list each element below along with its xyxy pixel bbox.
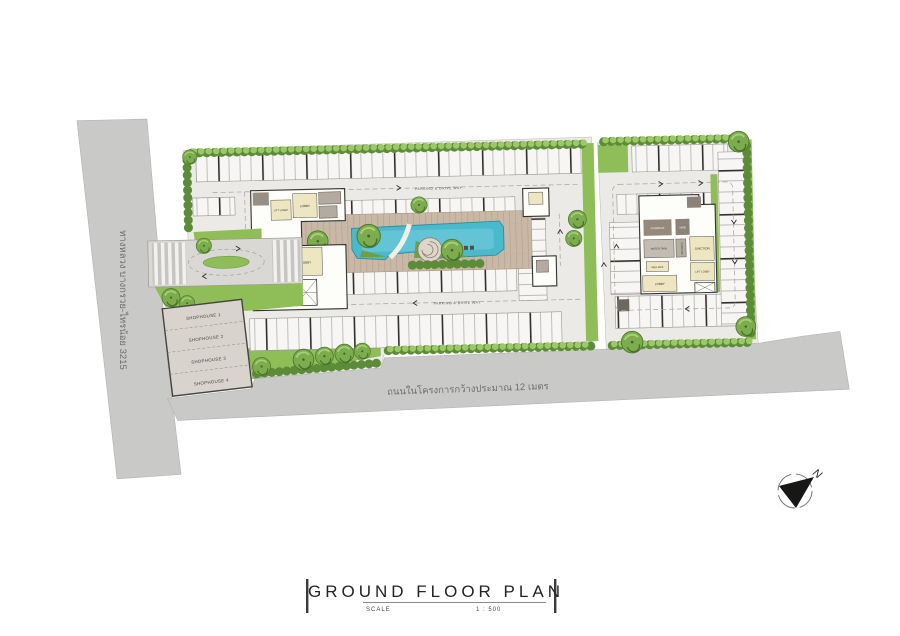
hedge-west-dark — [187, 160, 189, 232]
tree — [354, 343, 371, 360]
parking-row-small-west — [193, 197, 235, 216]
title-block: GROUND FLOOR PLAN SCALE 1 : 500 — [306, 579, 564, 613]
building-a-shaft — [253, 192, 269, 205]
tree — [568, 210, 586, 228]
room-label: MDB — [679, 225, 685, 229]
scale-value: 1 : 500 — [476, 607, 501, 613]
tree — [411, 197, 428, 214]
east-lawn-corner — [598, 144, 629, 173]
room-label: LOBBY — [655, 282, 665, 286]
room-label: LIFT LOBBY — [274, 208, 289, 212]
tree — [736, 316, 756, 336]
shophouse-block: SHOPHOUSE 1 SHOPHOUSE 2 SHOPHOUSE 3 SHOP… — [162, 299, 252, 396]
tree — [565, 230, 582, 247]
north-arrow: N — [778, 467, 824, 508]
tree — [252, 357, 270, 375]
parking-row-east-north — [632, 144, 729, 172]
tree — [357, 224, 381, 248]
room-label: PUMP RM. — [680, 242, 684, 255]
ground-floor-plan-page: PARKING & DRIVE WAY PARKING & DRIVE WAY — [0, 0, 900, 636]
north-pointer — [779, 477, 814, 508]
tree — [728, 131, 749, 152]
building-a-utility-2 — [319, 206, 337, 218]
room-label: WATER TANK — [651, 246, 668, 250]
plan-title: GROUND FLOOR PLAN — [308, 582, 564, 601]
utility-room — [529, 192, 543, 204]
room-label: MAIL BOX — [651, 265, 664, 269]
room-label: GARBAGE — [651, 226, 665, 230]
tree — [293, 349, 314, 370]
tree — [441, 239, 463, 261]
site-plan-drawing: PARKING & DRIVE WAY PARKING & DRIVE WAY — [0, 0, 900, 636]
entry-stripes-east — [272, 240, 301, 283]
room-label: LOBBY — [301, 260, 311, 264]
tree — [182, 150, 197, 165]
entry-drive — [147, 228, 303, 313]
tree — [621, 331, 643, 353]
parking-col-east-east — [718, 152, 748, 327]
building-b-top-room — [687, 197, 701, 208]
tree — [162, 288, 180, 306]
small-dark-room — [617, 299, 629, 311]
courtyard-hedge — [412, 264, 480, 266]
room-label: LIFT LOBBY — [695, 269, 710, 273]
tree — [196, 238, 212, 254]
utility-room — [536, 260, 548, 272]
highway-label: ทางหลวง บางกรวย-ไทรน้อย 3215 — [117, 230, 129, 370]
building-a-utility-1 — [319, 192, 341, 204]
room-label: LOBBY — [300, 204, 310, 208]
tree — [315, 347, 333, 365]
tree — [335, 344, 354, 363]
entry-stripes-west — [152, 242, 187, 285]
scale-label: SCALE — [366, 607, 391, 613]
spiral-deck — [418, 237, 443, 262]
room-label: JUNCTION — [694, 246, 709, 250]
